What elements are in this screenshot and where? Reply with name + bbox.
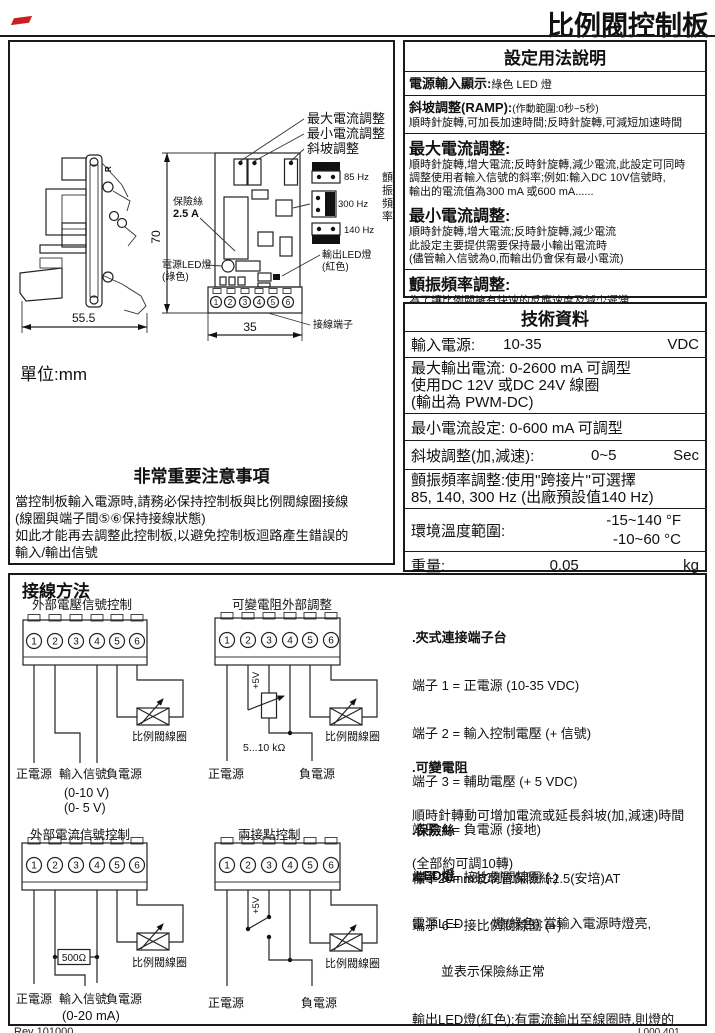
svg-text:1: 1 [31, 861, 37, 872]
wiring-diagram-current: 外部電流信號控制 1 2 3 4 5 6 500Ω [14, 826, 204, 1026]
switch-lever [248, 918, 267, 929]
valve-coil-symbol [330, 699, 362, 725]
wiring-diagram-voltage: 外部電壓信號控制 1 2 3 4 5 6 比例閥線圈 正電源 [14, 593, 204, 818]
svg-text:3: 3 [243, 298, 248, 307]
settings-power-display: 電源輸入顯示:綠色 LED 燈 [405, 72, 705, 96]
tech-title: 技術資料 [405, 304, 705, 332]
dim-55-5: 55.5 [22, 301, 147, 333]
svg-text:4: 4 [94, 637, 100, 648]
min-current-pot [252, 161, 256, 165]
power-display-text: 綠色 LED 燈 [491, 79, 552, 91]
notice-line: 輸入/輸出信號 [15, 542, 98, 561]
range-label: (0-10 V) [64, 786, 109, 800]
ramp-label: 斜坡調整(RAMP): [409, 100, 512, 115]
svg-text:2: 2 [245, 861, 251, 872]
max-current-line: 調整使用者輸入信號的斜率;例如:輸入DC 10V信號時, [409, 172, 701, 186]
tech-row-dither: 顫振頻率調整:使用"跨接片"可選擇 85, 140, 300 Hz (出廠預設值… [405, 470, 705, 509]
led-line: 電源LED 燈(綠色):當輸入電源時燈亮, [412, 916, 674, 932]
pos-label: 正電源 [208, 996, 244, 1010]
svg-text:4: 4 [287, 861, 293, 872]
max-current-line: 輸出的電流值為300 mA 或600 mA...... [409, 186, 701, 200]
coil-label: 比例閥線圈 [325, 956, 380, 970]
tech-line: (輸出為 PWM-DC) [411, 394, 699, 411]
front-view: 1 2 3 4 5 6 70 [149, 153, 302, 341]
svg-text:1: 1 [214, 298, 219, 307]
dim-35: 35 [208, 313, 302, 341]
svg-text:6: 6 [286, 298, 291, 307]
svg-text:3: 3 [266, 861, 272, 872]
svg-text:5: 5 [307, 636, 313, 647]
tech-unit: kg [683, 557, 699, 574]
pos-label: 正電源 [208, 767, 244, 781]
footer-right: L000.401 [638, 1027, 680, 1033]
settings-min-current: 最小電流調整: 順時針旋轉,增大電流;反時針旋轉,減少電流 此設定主要提供需要保… [405, 201, 705, 270]
diagram-title: 可變電阻外部調整 [232, 597, 333, 612]
fuse-label: 保險絲 [173, 195, 203, 208]
dither-label: 顫振頻率調整: [409, 271, 701, 295]
svg-text:1: 1 [31, 637, 37, 648]
svg-text:5: 5 [114, 637, 120, 648]
max-current-label: 最大電流調整: [409, 135, 701, 159]
sig-label: 輸入信號 [59, 991, 107, 1006]
ramp-pot [289, 161, 293, 165]
wiper-arrow [248, 696, 284, 710]
svg-text:3: 3 [73, 861, 79, 872]
page-title: 比例閥控制板 [547, 4, 709, 43]
min-current-line: (儘管輸入信號為0,而輸出仍會保有最小電流) [409, 253, 701, 267]
coil-label: 比例閥線圈 [132, 955, 187, 969]
varres-heading: .可變電阻 [412, 760, 684, 776]
terminal-block: 1 2 3 4 5 6 [22, 838, 147, 891]
led-line: 輸出LED燈(紅色):有電流輸出至線圈時,則燈的 [412, 1012, 674, 1028]
min-current-line: 順時針旋轉,增大電流;反時針旋轉,減少電流 [409, 226, 701, 240]
tech-label: 輸入電源: [411, 334, 475, 355]
brand-logo-mark [11, 16, 32, 25]
range-label: (0- 5 V) [64, 801, 106, 815]
tech-label: 斜坡調整(加,減速): [411, 445, 534, 466]
svg-text:2: 2 [52, 637, 58, 648]
svg-text:5: 5 [271, 298, 276, 307]
led-heading: .LED燈 [412, 868, 674, 884]
coil-label: 比例閥線圈 [132, 729, 187, 743]
output-led-color: (紅色) [322, 260, 349, 273]
tech-value-f: -15~140 °F [505, 511, 681, 530]
diagram-title: 外部電流信號控制 [30, 827, 130, 842]
freq-140: 140 Hz [344, 225, 374, 236]
terminal-block: 1 2 3 4 5 6 [23, 615, 147, 666]
power-display-label: 電源輸入顯示: [409, 76, 491, 91]
freq-85: 85 Hz [344, 172, 369, 183]
freq-300: 300 Hz [338, 199, 368, 210]
power-led-color: (綠色) [162, 270, 189, 283]
terminal-callout: 接線端子 [313, 318, 353, 331]
tech-line: 85, 140, 300 Hz (出廠預設值140 Hz) [411, 489, 699, 506]
jumper-legend: 跨接片 85 Hz 跨接片 300 Hz 跨接片 140 Hz 顫 振 頻 率 [293, 162, 393, 244]
power-led-label: 電源LED燈 [162, 258, 211, 271]
wiring-diagram-two-contact: 兩接點控制 1 2 3 4 5 6 +5V [205, 826, 405, 1026]
svg-text:1: 1 [224, 861, 230, 872]
power-led [222, 260, 234, 272]
output-led-label: 輸出LED燈 [322, 248, 371, 261]
tech-label: 環境溫度範圍: [411, 520, 505, 541]
settings-title: 設定用法說明 [405, 42, 705, 72]
svg-text:5: 5 [307, 861, 313, 872]
max-current-line: 順時針旋轉,增大電流;反時針旋轉,減少電流,此設定可同時 [409, 159, 701, 173]
max-current-pot [238, 161, 242, 165]
jumper-label-300: 跨接片 [326, 194, 335, 214]
svg-text:3: 3 [73, 637, 79, 648]
side-letter: R [104, 166, 113, 172]
ramp-line: 順時針旋轉,可加長加速時間;反時針旋轉,可減短加速時間 [409, 117, 701, 131]
tech-value: 10-35 [475, 336, 667, 353]
tech-unit: Sec [673, 447, 699, 464]
side-view: R 55.5 [20, 155, 147, 333]
tech-line: 最大輸出電流: 0-2600 mA 可調型 [411, 360, 699, 377]
neg-label: 負電源 [106, 992, 142, 1006]
svg-text:4: 4 [287, 636, 293, 647]
terminal-line: 端子 1 = 正電源 (10-35 VDC) [412, 678, 591, 694]
diagram-title: 外部電壓信號控制 [32, 597, 132, 612]
fuse-value: 2.5 A [173, 208, 199, 220]
neg-label: 負電源 [299, 767, 335, 781]
neg-label: 負電源 [106, 767, 142, 781]
jumper-label-140: 跨接片 [316, 235, 336, 244]
pos-label: 正電源 [16, 992, 52, 1006]
svg-text:1: 1 [224, 636, 230, 647]
tech-unit: VDC [667, 336, 699, 353]
svg-text:2: 2 [52, 861, 58, 872]
footer-left: Rev 101000 [14, 1026, 73, 1033]
wiring-diagram-potentiometer: 可變電阻外部調整 1 2 3 4 5 6 +5V 5...10 kΩ [205, 593, 405, 793]
diagram-title: 兩接點控制 [238, 827, 301, 842]
potentiometer-symbol [262, 693, 277, 718]
datasheet-page: 比例閥控制板 訂購編號: PCB-2600 [0, 0, 715, 1033]
notice-title: 非常重要注意事項 [8, 462, 395, 487]
resistor-label: 500Ω [62, 953, 87, 964]
tech-row-max-output: 最大輸出電流: 0-2600 mA 可調型 使用DC 12V 或DC 24V 線… [405, 358, 705, 414]
svg-text:5: 5 [114, 861, 120, 872]
svg-text:6: 6 [134, 861, 140, 872]
callout-ramp: 斜坡調整 [307, 141, 359, 156]
svg-text:振: 振 [382, 183, 393, 197]
callout-max-current: 最大電流調整 [307, 111, 385, 126]
ramp-note: (作動範圍:0秒~5秒) [512, 104, 598, 115]
svg-text:頻: 頻 [382, 196, 393, 210]
pot-value-label: 5...10 kΩ [243, 742, 285, 754]
plus5v-label: +5V [251, 671, 262, 689]
svg-text:70: 70 [149, 230, 163, 244]
svg-text:35: 35 [243, 320, 257, 334]
dim-70: 70 [149, 153, 215, 313]
svg-text:3: 3 [266, 636, 272, 647]
freq-jumper-block [276, 200, 292, 216]
svg-text:2: 2 [228, 298, 233, 307]
pcb-drawing: R 55.5 [10, 105, 400, 350]
settings-max-current: 最大電流調整: 順時針旋轉,增大電流;反時針旋轉,減少電流,此設定可同時 調整使… [405, 134, 705, 202]
valve-coil-symbol [137, 924, 169, 950]
led-info: .LED燈 電源LED 燈(綠色):當輸入電源時燈亮, 並表示保險絲正常 輸出L… [412, 836, 674, 1033]
svg-text:6: 6 [328, 636, 334, 647]
valve-coil-symbol [137, 699, 169, 725]
valve-coil-symbol [330, 925, 362, 951]
jumper-label-85: 跨接片 [316, 162, 336, 171]
terminal-block: 1 2 3 4 5 6 [215, 613, 340, 666]
title-rule [0, 35, 715, 37]
svg-text:6: 6 [328, 861, 334, 872]
pos-label: 正電源 [16, 767, 52, 781]
sig-label: 輸入信號 [59, 766, 107, 781]
settings-panel: 設定用法說明 電源輸入顯示:綠色 LED 燈 斜坡調整(RAMP):(作動範圍:… [403, 40, 707, 298]
tech-panel: 技術資料 輸入電源: 10-35 VDC 最大輸出電流: 0-2600 mA 可… [403, 302, 707, 572]
tech-row-ramp: 斜坡調整(加,減速): 0~5 Sec [405, 441, 705, 470]
terminal-block: 1 2 3 4 5 6 [215, 838, 340, 891]
tech-line: 顫振頻率調整:使用"跨接片"可選擇 [411, 472, 699, 489]
min-current-label: 最小電流調整: [409, 202, 701, 226]
unit-note: 單位:mm [20, 360, 87, 385]
fuse-component [224, 197, 248, 259]
tech-row-temperature: 環境溫度範圍: -15~140 °F -10~60 °C [405, 509, 705, 552]
svg-text:率: 率 [382, 209, 393, 223]
svg-text:2: 2 [245, 636, 251, 647]
output-led [273, 274, 280, 280]
dither-freq-vertical: 顫 [382, 170, 393, 184]
coil-label: 比例閥線圈 [325, 729, 380, 743]
plus5v-label: +5V [251, 896, 262, 914]
svg-text:6: 6 [134, 637, 140, 648]
led-line: 並表示保險絲正常 [412, 964, 674, 980]
callout-min-current: 最小電流調整 [307, 126, 385, 141]
svg-text:55.5: 55.5 [72, 311, 96, 325]
tech-row-input-power: 輸入電源: 10-35 VDC [405, 332, 705, 358]
terminal-info-heading: .夾式連接端子台 [412, 630, 591, 646]
tech-line: 最小電流設定: 0-600 mA 可調型 [411, 417, 623, 438]
tech-value: 0~5 [534, 447, 673, 464]
settings-ramp: 斜坡調整(RAMP):(作動範圍:0秒~5秒) 順時針旋轉,可加長加速時間;反時… [405, 96, 705, 134]
svg-text:4: 4 [94, 861, 100, 872]
tech-line: 使用DC 12V 或DC 24V 線圈 [411, 377, 699, 394]
tech-value-c: -10~60 °C [505, 530, 681, 549]
tech-value: 0.05 [445, 557, 683, 574]
min-current-line: 此設定主要提供需要保持最小輸出電流時 [409, 240, 701, 254]
neg-label: 負電源 [301, 996, 337, 1010]
svg-text:4: 4 [257, 298, 262, 307]
tech-row-min-current: 最小電流設定: 0-600 mA 可調型 [405, 414, 705, 441]
range-label: (0-20 mA) [62, 1008, 120, 1023]
terminal-strip: 1 2 3 4 5 6 [208, 287, 302, 313]
